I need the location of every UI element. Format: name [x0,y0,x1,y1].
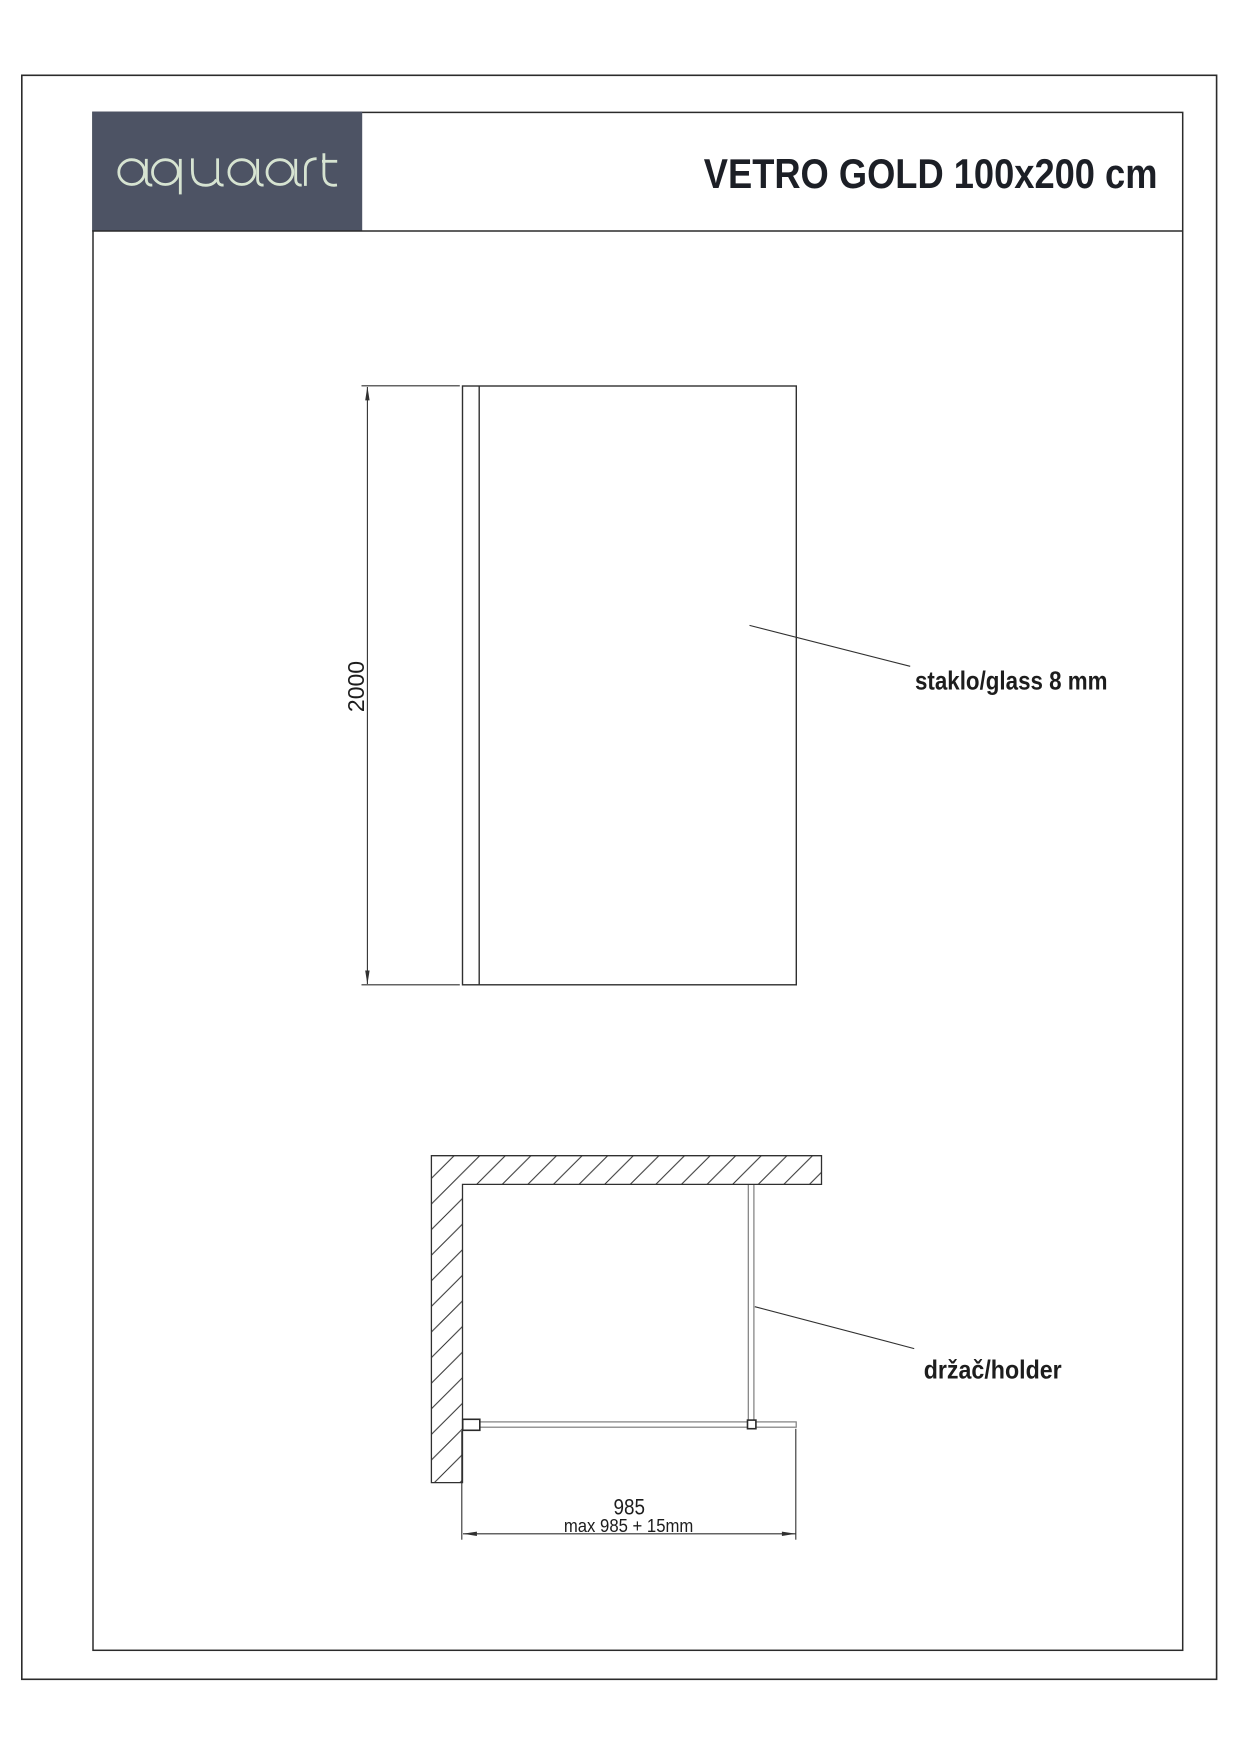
svg-text:max 985 + 15mm: max 985 + 15mm [564,1515,694,1536]
svg-text:2000: 2000 [343,661,369,712]
svg-text:držač/holder: držač/holder [924,1355,1062,1385]
svg-text:VETRO GOLD 100x200 cm: VETRO GOLD 100x200 cm [704,150,1158,197]
svg-text:staklo/glass 8 mm: staklo/glass 8 mm [915,665,1108,695]
